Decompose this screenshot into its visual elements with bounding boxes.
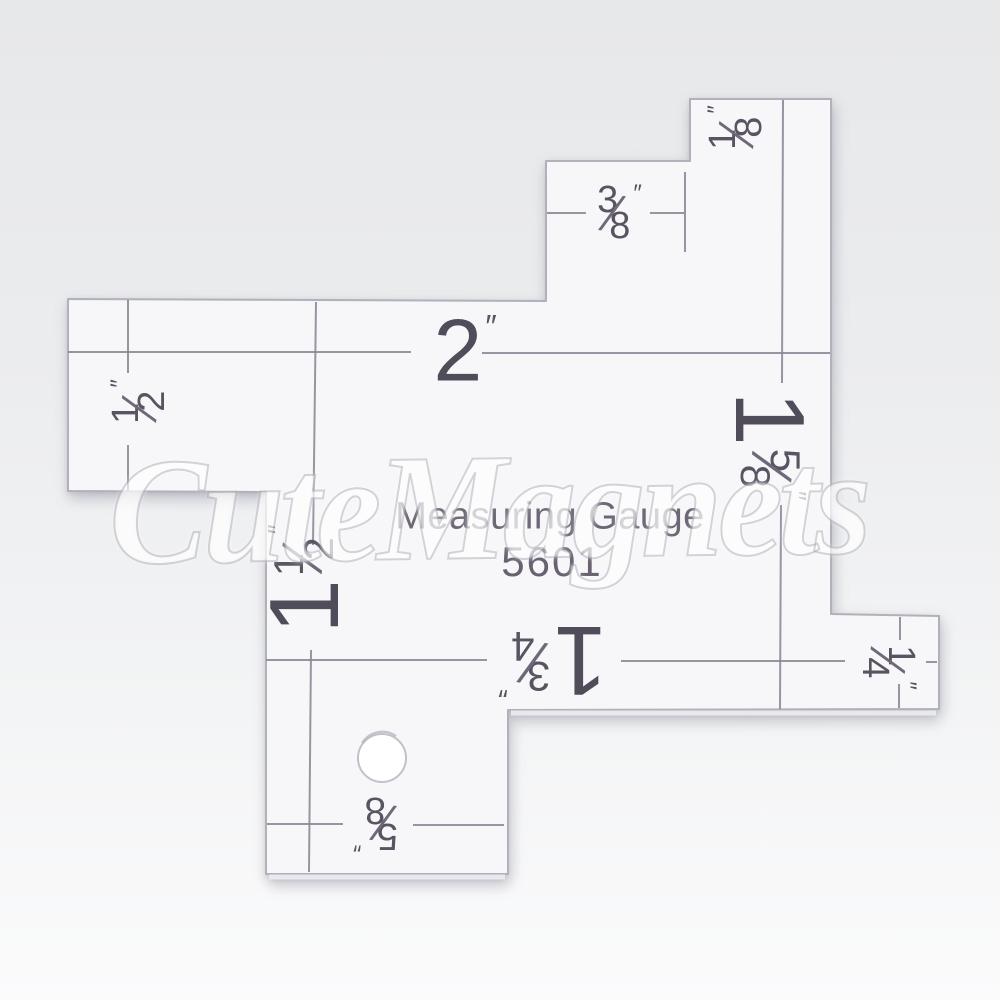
product-title: Measuring Gauge [395,496,705,539]
fraction: 3 ⁄ 8 [597,193,630,235]
fraction: 3 ⁄ 4 [511,637,550,685]
ruler-line-rightvertical-bottom [780,505,781,709]
fraction-denominator: 8 [739,464,772,487]
label-1-4-inch: 1 ⁄ 4 ″ [866,642,908,688]
whole-number: 1 [553,623,608,699]
product-model-number: 5601 [501,538,602,586]
inch-prime: ″ [267,526,289,534]
fraction: 1 ⁄ 2 [119,391,161,424]
hanging-hole [358,734,406,782]
gauge-plate [68,99,939,874]
inch-prime: ″ [708,107,727,114]
inch-prime: ″ [785,491,807,499]
fraction-denominator: 2 [138,391,168,412]
label-1-5-8-inch: 1 5 ⁄ 8 ″ [732,391,808,499]
label-1-3-4-inch: 1 3 ⁄ 4 ″ [500,623,608,699]
fraction-denominator: 8 [365,794,386,824]
inch-prime: ″ [633,185,640,204]
label-2-inch: 2 ″ [433,317,494,386]
fraction-denominator: 2 [303,537,336,560]
label-1-8-inch: 1 ⁄ 8 ″ [716,107,758,153]
fraction-denominator: 8 [609,212,630,242]
fraction-denominator: 4 [511,630,534,663]
fraction: 1 ⁄ 2 [280,537,328,576]
label-1-1-2-inch: 1 1 ⁄ 2 ″ [266,526,342,634]
inch-prime: ″ [500,676,508,698]
whole-number: 1 [266,579,342,634]
ruler-line-rightvertical-top [782,100,783,383]
whole-number: 1 [732,391,808,446]
product-photo: 3 ⁄ 8 ″ 1 ⁄ 8 ″ 2 ″ 1 ⁄ 2 ″ 1 5 ⁄ 8 ″ [0,0,1000,1000]
inch-prime: ″ [111,381,130,388]
inch-prime: ″ [898,681,917,688]
fraction: 5 ⁄ 8 [746,449,794,488]
whole-number: 2 [433,317,482,386]
label-1-2-inch: 1 ⁄ 2 ″ [119,381,161,427]
fraction: 5 ⁄ 8 [365,801,398,843]
fraction-denominator: 4 [859,657,889,678]
fraction-denominator: 8 [735,117,765,138]
label-3-8-inch: 3 ⁄ 8 ″ [594,193,640,235]
fraction: 1 ⁄ 8 [716,117,758,150]
fraction: 1 ⁄ 4 [866,645,908,678]
inch-prime: ″ [485,315,494,340]
label-5-8-inch: 5 ⁄ 8 ″ [355,801,401,843]
inch-prime: ″ [355,833,362,852]
